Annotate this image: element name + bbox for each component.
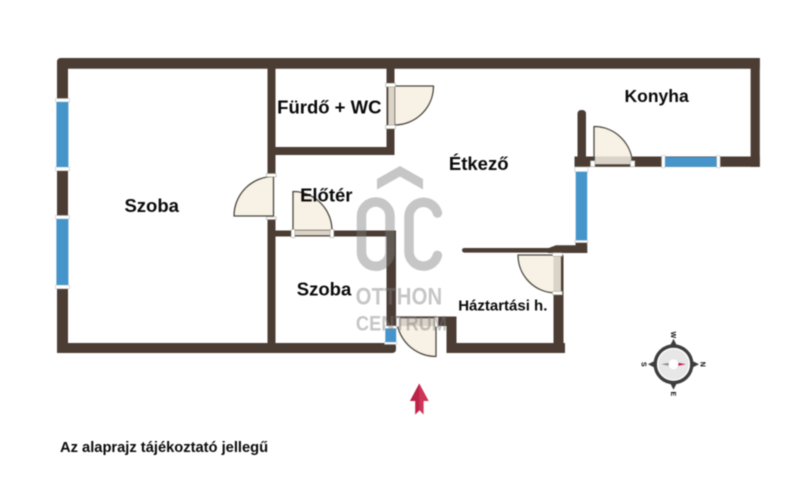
svg-text:Szoba: Szoba xyxy=(297,278,352,299)
svg-text:W: W xyxy=(669,331,676,338)
svg-text:Konyha: Konyha xyxy=(625,86,689,106)
svg-text:Szoba: Szoba xyxy=(124,195,179,216)
svg-text:Étkező: Étkező xyxy=(449,153,509,174)
svg-text:OTTHON: OTTHON xyxy=(356,283,443,310)
svg-text:Az alaprajz tájékoztató jelleg: Az alaprajz tájékoztató jellegű xyxy=(60,440,268,456)
svg-text:Fürdő + WC: Fürdő + WC xyxy=(277,96,381,117)
svg-text:CENTRUM: CENTRUM xyxy=(356,312,447,336)
svg-text:E: E xyxy=(669,391,676,396)
svg-text:N: N xyxy=(699,362,706,367)
svg-text:Háztartási h.: Háztartási h. xyxy=(458,298,547,315)
svg-text:Előtér: Előtér xyxy=(300,185,352,206)
svg-text:S: S xyxy=(640,362,647,367)
